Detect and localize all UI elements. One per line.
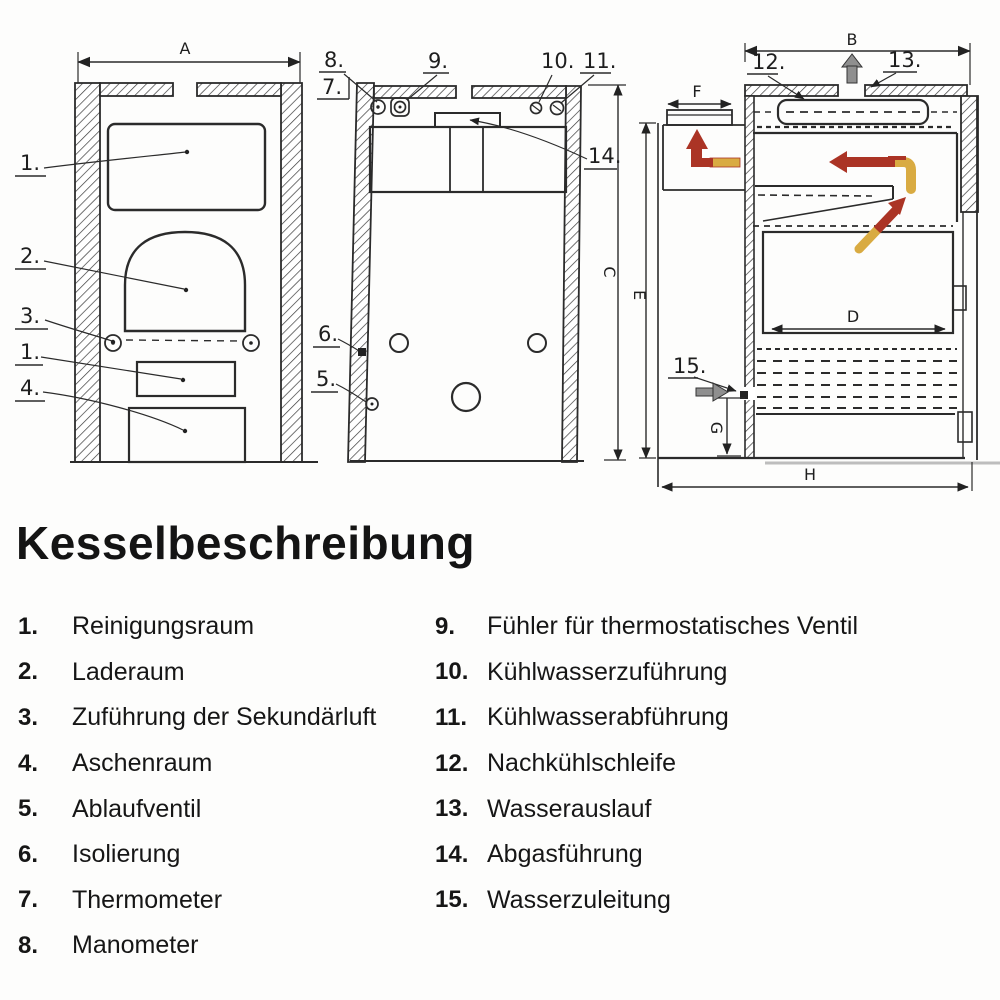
front-view: A 1. 2. 3.: [15, 39, 318, 462]
legend-item: 8.Manometer: [18, 923, 376, 969]
flue-gas-flow-arrow-upper: [829, 151, 911, 189]
legend-number: 12.: [435, 750, 487, 778]
legend-item: 10.Kühlwasserzuführung: [435, 650, 858, 696]
callout-8-label: 8.: [324, 48, 344, 72]
side-section-view: B 12. 13.: [630, 30, 1000, 491]
legend-label: Laderaum: [72, 658, 185, 687]
legend-number: 15.: [435, 886, 487, 914]
water-outlet-arrow: [842, 54, 862, 83]
legend-label: Abgasführung: [487, 840, 643, 869]
legend-label: Aschenraum: [72, 749, 212, 778]
flue-gas-box: [370, 127, 566, 192]
dim-b-label: B: [847, 30, 858, 49]
right-tab-lower: [958, 412, 972, 442]
legend-number: 6.: [18, 841, 72, 869]
callout-14-label: 14.: [588, 144, 621, 168]
callout-11-label: 11.: [583, 49, 616, 73]
legend-label: Thermometer: [72, 886, 222, 915]
heat-exchanger-section: [757, 349, 957, 408]
legend-item: 5.Ablaufventil: [18, 786, 376, 832]
legend-label: Isolierung: [72, 840, 180, 869]
legend-item: 1.Reinigungsraum: [18, 604, 376, 650]
callout-9-label: 9.: [428, 49, 448, 73]
legend-item: 2.Laderaum: [18, 650, 376, 696]
legend-label: Reinigungsraum: [72, 612, 254, 641]
dim-d-label: D: [847, 307, 859, 326]
legend-label: Kühlwasserzuführung: [487, 658, 727, 687]
rear-view: 8. 7. 9. 10. 11. 14. 6.: [311, 48, 626, 462]
dimension-c: C: [588, 85, 626, 460]
callout-13-label: 13.: [888, 48, 921, 72]
callout-1-label: 1.: [20, 151, 40, 175]
legend-number: 1.: [18, 613, 72, 641]
dimension-f: F: [668, 82, 731, 104]
loading-chamber-door: [125, 232, 245, 331]
legend-item: 13.Wasserauslauf: [435, 786, 858, 832]
flue-gas-flow-arrow-diagonal: [859, 197, 906, 249]
drain-valve-port: [366, 398, 378, 410]
legend-label: Kühlwasserabführung: [487, 703, 729, 732]
legend-number: 3.: [18, 704, 72, 732]
legend-number: 2.: [18, 658, 72, 686]
dimension-h: H: [662, 462, 972, 491]
dim-c-label: C: [600, 266, 619, 277]
legend-label: Nachkühlschleife: [487, 749, 676, 778]
legend-number: 8.: [18, 932, 72, 960]
callout-2-label: 2.: [20, 244, 40, 268]
legend-label: Wasserauslauf: [487, 795, 651, 824]
callout-4: 4.: [15, 376, 187, 433]
legend-number: 9.: [435, 613, 487, 641]
lower-port: [452, 383, 480, 411]
legend-column-right: 9.Fühler für thermostatisches Ventil 10.…: [435, 604, 858, 923]
callout-1: 1.: [15, 150, 189, 176]
callout-4-label: 4.: [20, 376, 40, 400]
cooling-water-inlet-port: [531, 103, 542, 114]
flue-outlet-stub: [435, 113, 500, 127]
dimension-d: D: [772, 307, 945, 329]
cleaning-door-lower: [137, 362, 235, 396]
right-wall-insulation: [961, 96, 978, 212]
legend-number: 13.: [435, 795, 487, 823]
cleaning-chamber-door: [108, 124, 265, 210]
secondary-air-inlets: [105, 335, 259, 351]
dim-a-label: A: [180, 39, 191, 58]
dim-f-label: F: [692, 82, 701, 101]
callout-10-label: 10.: [541, 49, 574, 73]
callout-15-label: 15.: [673, 354, 706, 378]
boiler-description-sheet: A 1. 2. 3.: [0, 0, 1000, 1000]
legend-label: Ablaufventil: [72, 795, 201, 824]
legend-item: 14.Abgasführung: [435, 832, 858, 878]
legend-number: 10.: [435, 658, 487, 686]
legend-number: 5.: [18, 795, 72, 823]
dim-h-label: H: [804, 465, 816, 484]
right-wall-insulation: [281, 83, 302, 462]
top-wall-right: [197, 83, 281, 96]
right-tab-upper: [953, 286, 966, 310]
dim-g-label: G: [707, 422, 726, 434]
legend-item: 12.Nachkühlschleife: [435, 741, 858, 787]
boiler-diagram: A 1. 2. 3.: [0, 0, 1000, 505]
callout-7: 7.: [317, 75, 349, 99]
legend-number: 14.: [435, 841, 487, 869]
top-wall-left: [100, 83, 173, 96]
top-wall-right: [865, 85, 967, 96]
callout-6-label: 6.: [318, 322, 338, 346]
legend-number: 7.: [18, 886, 72, 914]
legend-label: Zuführung der Sekundärluft: [72, 703, 376, 732]
air-port-right: [528, 334, 546, 352]
air-port-left: [390, 334, 408, 352]
callout-2: 2.: [15, 244, 188, 292]
legend-column-left: 1.Reinigungsraum 2.Laderaum 3.Zuführung …: [18, 604, 376, 969]
page-title: Kesselbeschreibung: [16, 516, 475, 570]
legend-item: 3.Zuführung der Sekundärluft: [18, 695, 376, 741]
legend-number: 11.: [435, 704, 487, 732]
callout-12-label: 12.: [752, 50, 785, 74]
callout-3-label: 3.: [20, 304, 40, 328]
dimension-e: E: [630, 123, 656, 458]
top-wall-right: [472, 86, 566, 98]
cooling-water-outlet-port: [551, 102, 564, 115]
top-wall-left: [374, 86, 456, 98]
after-cooling-loop: [754, 100, 957, 127]
legend-item: 6.Isolierung: [18, 832, 376, 878]
left-wall-insulation: [75, 83, 100, 462]
sensor-port: [391, 98, 409, 116]
legend-item: 15.Wasserzuleitung: [435, 878, 858, 924]
legend-label: Wasserzuleitung: [487, 886, 671, 915]
front-flue-channel: [663, 110, 745, 190]
legend-item: 9.Fühler für thermostatisches Ventil: [435, 604, 858, 650]
right-wall-insulation: [562, 86, 581, 462]
legend-label: Manometer: [72, 931, 198, 960]
callout-3: 3.: [15, 304, 242, 344]
legend-item: 4.Aschenraum: [18, 741, 376, 787]
flue-gas-flow-arrow-front: [686, 129, 740, 167]
legend-item: 7.Thermometer: [18, 878, 376, 924]
callout-7-label: 7.: [322, 75, 342, 99]
flue-baffle: [755, 186, 893, 221]
legend-number: 4.: [18, 750, 72, 778]
dimension-a: A: [78, 39, 300, 84]
callout-5-label: 5.: [316, 367, 336, 391]
legend-label: Fühler für thermostatisches Ventil: [487, 612, 858, 641]
callout-1b-label: 1.: [20, 340, 40, 364]
front-wall: [745, 96, 754, 458]
dim-e-label: E: [630, 290, 649, 300]
legend-item: 11.Kühlwasserabführung: [435, 695, 858, 741]
dimension-g: G: [707, 398, 745, 456]
callout-13: 13.: [871, 48, 921, 87]
